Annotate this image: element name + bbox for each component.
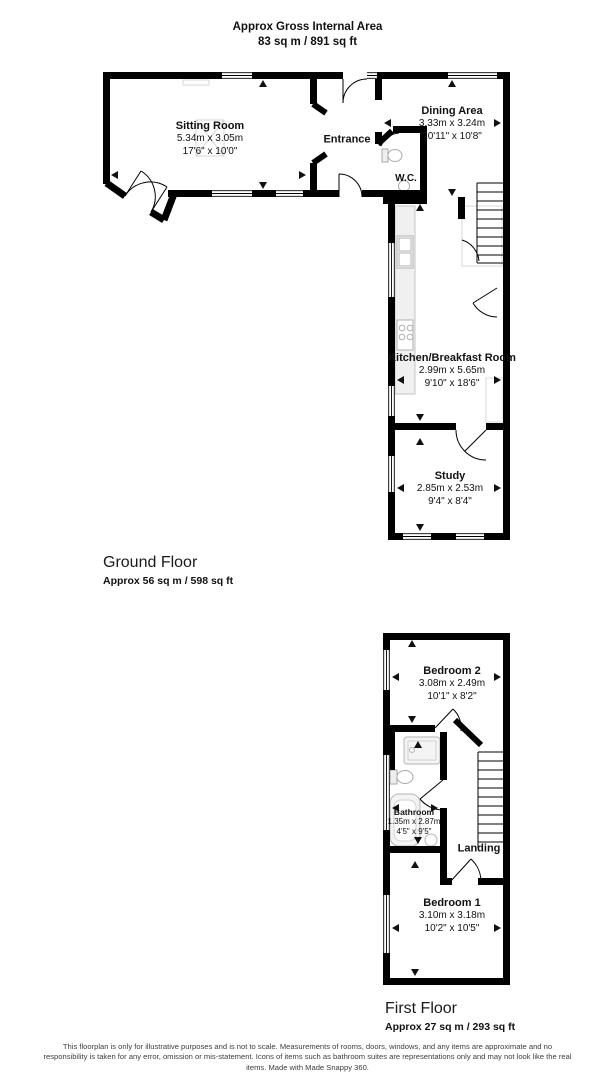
first-floor-caption: First Floor Approx 27 sq m / 293 sq ft (385, 997, 515, 1035)
disclaimer-text: This floorplan is only for illustrative … (44, 1042, 572, 1073)
room-imperial: 4'5" x 9'5" (388, 827, 441, 837)
wc-toilet-icon (382, 149, 402, 162)
room-name: W.C. (395, 173, 417, 185)
room-label-wc: W.C. (395, 173, 417, 185)
room-imperial: 10'2" x 10'5" (419, 923, 485, 935)
room-imperial: 10'11" x 10'8" (419, 131, 485, 143)
room-label-sitting-room: Sitting Room 5.34m x 3.05m 17'6" x 10'0" (176, 120, 244, 158)
room-metric: 3.33m x 3.24m (419, 119, 485, 131)
room-metric: 3.08m x 2.49m (419, 679, 485, 691)
room-name: Bedroom 2 (419, 665, 485, 678)
room-label-study: Study 2.85m x 2.53m 9'4" x 8'4" (417, 470, 483, 508)
stairs-icon-first (478, 752, 503, 848)
room-name: Entrance (323, 133, 370, 146)
floor-area: Approx 56 sq m / 598 sq ft (103, 574, 233, 589)
shower-icon (404, 737, 440, 764)
room-name: Bedroom 1 (419, 897, 485, 910)
room-name: Study (417, 470, 483, 483)
ground-floor-caption: Ground Floor Approx 56 sq m / 598 sq ft (103, 551, 233, 589)
floor-name: Ground Floor (103, 551, 233, 574)
toilet-icon (390, 770, 413, 784)
room-metric: 3.10m x 3.18m (419, 911, 485, 923)
room-name: Sitting Room (176, 120, 244, 133)
floor-area: Approx 27 sq m / 293 sq ft (385, 1020, 515, 1035)
understairs-outline (462, 206, 502, 266)
hob-icon (397, 320, 413, 350)
room-name: Bathroom (388, 807, 441, 817)
room-imperial: 10'1" x 8'2" (419, 691, 485, 703)
floorplan-page: Approx Gross Internal Area 83 sq m / 891… (0, 0, 615, 1080)
room-name: Landing (458, 842, 501, 855)
room-imperial: 9'10" x 18'6" (388, 378, 516, 390)
room-metric: 1.35m x 2.87m (388, 817, 441, 827)
room-label-bedroom-2: Bedroom 2 3.08m x 2.49m 10'1" x 8'2" (419, 665, 485, 703)
room-label-entrance: Entrance (323, 133, 370, 146)
stair-angle-wall (455, 720, 481, 745)
room-metric: 2.99m x 5.65m (388, 366, 516, 378)
room-name: Dining Area (419, 105, 485, 118)
room-label-dining-area: Dining Area 3.33m x 3.24m 10'11" x 10'8" (419, 105, 485, 143)
room-imperial: 9'4" x 8'4" (417, 496, 483, 508)
room-imperial: 17'6" x 10'0" (176, 146, 244, 158)
ground-floor-angled-walls (107, 183, 175, 220)
room-metric: 2.85m x 2.53m (417, 484, 483, 496)
room-label-kitchen: Kitchen/Breakfast Room 2.99m x 5.65m 9'1… (388, 352, 516, 390)
floor-name: First Floor (385, 997, 515, 1020)
room-label-landing: Landing (458, 842, 501, 855)
room-name: Kitchen/Breakfast Room (388, 352, 516, 365)
room-label-bathroom: Bathroom 1.35m x 2.87m 4'5" x 9'5" (388, 807, 441, 837)
measure-arrows-ground (111, 80, 501, 531)
room-label-bedroom-1: Bedroom 1 3.10m x 3.18m 10'2" x 10'5" (419, 897, 485, 935)
room-metric: 5.34m x 3.05m (176, 134, 244, 146)
floorplan-drawing (0, 0, 615, 1080)
sink-icon (397, 236, 413, 268)
stairs-icon (477, 183, 503, 263)
